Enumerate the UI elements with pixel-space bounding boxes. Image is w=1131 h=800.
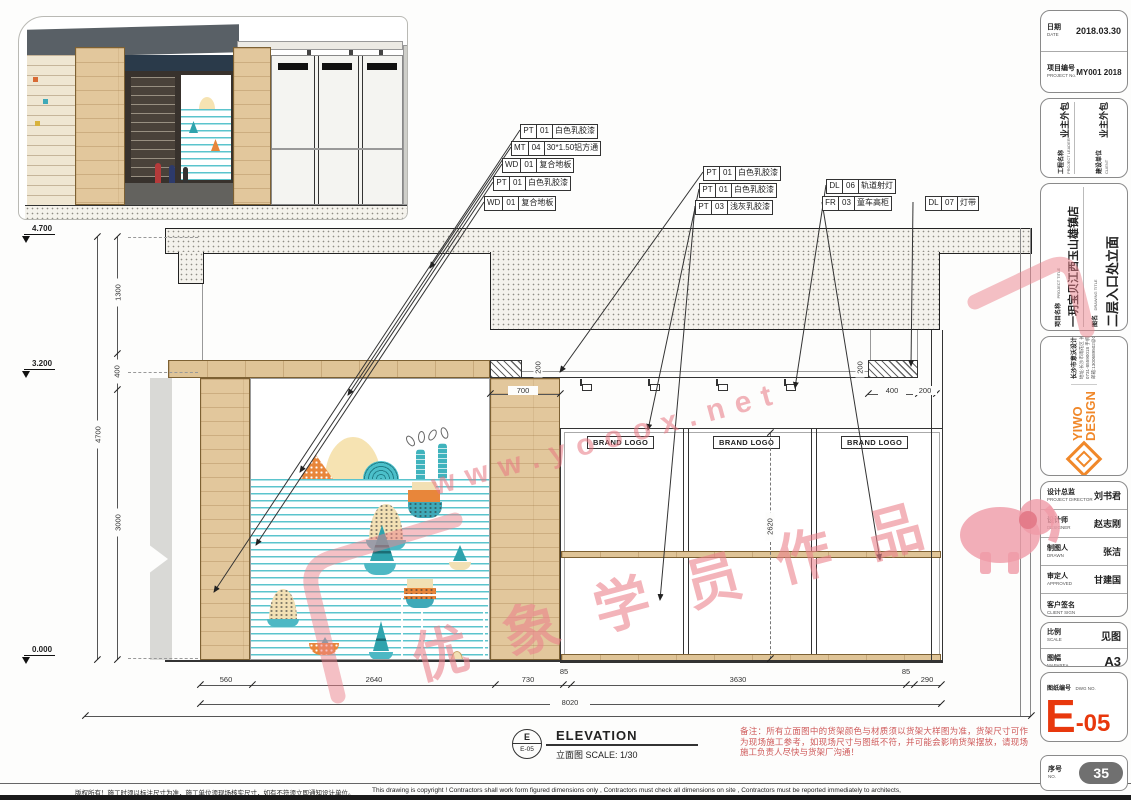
render-interior (125, 55, 233, 205)
tag-code: MT (512, 142, 529, 155)
tag-name: 童车高柜 (855, 197, 891, 210)
outer-dim-line (85, 716, 1031, 717)
level-triangle (22, 371, 30, 378)
material-tag: PT01白色乳胶漆 (699, 183, 777, 198)
client-row: 建设单位CLIENT 业主外包 (1096, 102, 1110, 174)
render-box (43, 99, 48, 104)
size-value: A3 (1104, 654, 1121, 667)
date-label-en: DATE (1047, 32, 1061, 38)
material-tag: PT03浅灰乳胶漆 (695, 200, 773, 215)
date-value: 2018.03.30 (1076, 26, 1121, 36)
brand-logo-sign: BRAND LOGO (587, 436, 654, 449)
bulkhead-hatch-left (490, 360, 522, 378)
dim-label-total: 8020 (550, 698, 590, 707)
vdim-label-2620: 2620 (766, 513, 775, 541)
client-label-en: CLIENT (1104, 150, 1110, 174)
approved-label: 审定人APPROVED (1047, 573, 1072, 587)
size-label-en: MAPAREA (1047, 663, 1069, 668)
level-triangle (22, 236, 30, 243)
projno-label: 项目编号PROJECT No. (1047, 65, 1076, 79)
serial-label: 序号 NO. (1048, 766, 1062, 780)
approved-value: 甘建国 (1094, 573, 1121, 586)
callout-title: ELEVATION (556, 728, 637, 743)
client-sign-label-en: CLIENT SIGN (1047, 610, 1075, 616)
level-mark: 0.000 (24, 645, 55, 656)
wall-line (917, 330, 918, 360)
slab-drop-right (490, 252, 940, 330)
tag-name: 浅灰乳胶漆 (728, 201, 772, 214)
projno-value: MY001 2018 (1076, 68, 1121, 77)
drawing-sheet: BRAND LOGO BRAND LOGO BRAND LOGO (0, 0, 1131, 800)
render-wood-column-left (75, 47, 125, 205)
callout-subtitle: 立面图 SCALE: 1/30 (556, 748, 638, 761)
designer-label-en: DESIGNER (1047, 525, 1071, 531)
tag-code: PT (700, 184, 716, 197)
render-mural-slice (181, 75, 231, 180)
render-box (33, 77, 38, 82)
render-brand-sign (322, 63, 352, 70)
material-tag: MT0430*1.50铝方通 (511, 141, 601, 156)
tag-code: PT (521, 125, 537, 138)
track-light-head (582, 384, 592, 391)
dim-label-200: 200 (534, 358, 543, 378)
mural-leaf (418, 431, 425, 443)
callout-sheet: E-05 (513, 746, 541, 753)
render-storefront (271, 55, 403, 205)
leader-label-en: PROJECT LEADER (1066, 138, 1072, 174)
render-brand-sign (278, 63, 308, 70)
storefront-mullion (811, 429, 817, 661)
mural-ship-deck (407, 579, 433, 588)
material-tag: WD01复合地板 (502, 158, 574, 173)
footer-bar (0, 795, 1131, 800)
approved-label-en: APPROVED (1047, 581, 1072, 587)
client-sign-label: 客户签名CLIENT SIGN (1047, 602, 1075, 616)
titleblock-serial-box: 序号 NO. 35 (1040, 755, 1128, 791)
drawing-title-value: 二层入口处立面 (1102, 187, 1121, 327)
tag-name: 白色乳胶漆 (732, 184, 776, 197)
scale-row: 比例SCALE 见图 (1041, 623, 1127, 649)
date-label-cn: 日期 (1047, 24, 1061, 32)
size-label-cn: 图幅 (1047, 655, 1069, 663)
approved-row: 审定人APPROVED 甘建国 (1041, 566, 1127, 594)
client-sign-row: 客户签名CLIENT SIGN (1041, 594, 1127, 617)
level-dash (128, 372, 198, 373)
wall-break-strip (150, 378, 172, 660)
mural-leaf (439, 426, 450, 440)
brand-logo-sign: BRAND LOGO (841, 436, 908, 449)
render-mullion (358, 56, 363, 204)
vdim-label: 1300 (114, 279, 123, 307)
storefront-mullion (683, 429, 689, 661)
tag-name: 白色乳胶漆 (553, 125, 597, 138)
date-label: 日期DATE (1047, 24, 1061, 38)
vdim-label: 4700 (94, 421, 103, 449)
dwgno-value: E -05 (1041, 695, 1127, 737)
tag-num: 01 (537, 125, 553, 138)
dim-label: 3630 (708, 675, 768, 684)
callout-letter: E (513, 732, 541, 742)
studio-email: 邮箱:1300689502@QQ.com (1091, 336, 1097, 379)
dim-label-200: 200 (856, 358, 865, 378)
wall-line (870, 330, 871, 360)
tag-num: 01 (503, 197, 519, 210)
mural-ship-band (408, 490, 440, 502)
leader-label: 工程名称PROJECT LEADER (1058, 138, 1072, 174)
tag-name: 白色乳胶漆 (736, 167, 780, 180)
drawn-label-cn: 制图人 (1047, 545, 1068, 553)
render-pillar (403, 45, 408, 205)
scale-label-en: SCALE (1047, 637, 1062, 643)
ceiling-line (522, 377, 868, 378)
titleblock-logo-box: YIWO DESIGN 长沙市意沃设计工作室 地址:长沙市雨花区 长沙大道米兰春… (1040, 336, 1128, 476)
tag-code: FR (823, 197, 839, 210)
project-title-row: 项目名称 PROJECT TITLE 一玥宝贝江西玉山雄镇店 (1047, 187, 1084, 327)
level-dash (128, 658, 198, 659)
vdim-line-total (97, 237, 98, 660)
yiwo-logo-text: YIWO DESIGN (1071, 391, 1097, 441)
tag-num: 01 (720, 167, 736, 180)
client-label-cn: 建设单位 (1096, 150, 1104, 174)
project-box-rotated: 项目名称 PROJECT TITLE 一玥宝贝江西玉山雄镇店 图名 DRAWIN… (1047, 187, 1121, 327)
render-thumbnail (18, 16, 408, 220)
designer-value: 赵志刚 (1094, 517, 1121, 530)
director-label: 设计总监PROJECT DIRECTOR (1047, 489, 1093, 503)
size-label: 图幅MAPAREA (1047, 655, 1069, 668)
serial-label-cn: 序号 (1048, 766, 1062, 774)
tag-code: PT (494, 177, 510, 190)
client-sign-label-cn: 客户签名 (1047, 602, 1075, 610)
titleblock-client-box: 工程名称PROJECT LEADER 业主外包 建设单位CLIENT 业主外包 (1040, 98, 1128, 178)
approved-label-cn: 审定人 (1047, 573, 1072, 581)
titleblock-scale-box: 比例SCALE 见图 图幅MAPAREA A3 (1040, 622, 1128, 667)
level-mark: 4.700 (24, 224, 55, 235)
designer-row: 设计师DESIGNER 赵志刚 (1041, 510, 1127, 538)
titleblock-date-box: 日期DATE 2018.03.30 项目编号PROJECT No. MY001 … (1040, 10, 1128, 93)
render-brand-sign (367, 63, 397, 70)
render-mural-sun (199, 97, 215, 109)
projno-label-cn: 项目编号 (1047, 65, 1076, 73)
callout-circle: E E-05 (512, 729, 542, 759)
dim-tick (114, 656, 121, 663)
scale-label: 比例SCALE (1047, 629, 1062, 643)
serial-value-pill: 35 (1079, 762, 1123, 784)
footer-divider (0, 783, 1131, 784)
mural-wall (250, 378, 490, 660)
yiwo-logo-icon (1066, 441, 1103, 476)
yiwo-logo-inner (1076, 451, 1093, 468)
project-number-row: 项目编号PROJECT No. MY001 2018 (1041, 52, 1127, 92)
tag-num: 01 (716, 184, 732, 197)
material-tag: WD01复合地板 (484, 196, 556, 211)
level-triangle (22, 657, 30, 664)
render-wood-column-right (233, 47, 271, 205)
studio-name: 长沙市意沃设计工作室 (1071, 336, 1079, 379)
director-row: 设计总监PROJECT DIRECTOR 刘书君 (1041, 482, 1127, 510)
client-label: 建设单位CLIENT (1096, 150, 1110, 174)
material-tag: PT01白色乳胶漆 (703, 166, 781, 181)
render-person (183, 167, 188, 183)
footer-en: This drawing is copyright ! Contractors … (372, 787, 901, 794)
project-title-label-cn: 项目名称 (1056, 303, 1062, 327)
mural-buoy-base (267, 619, 299, 627)
size-row: 图幅MAPAREA A3 (1041, 649, 1127, 667)
material-tag: PT01白色乳胶漆 (520, 124, 598, 139)
wood-column-left (200, 378, 250, 660)
director-value: 刘书君 (1094, 489, 1121, 502)
dim-label: 730 (508, 675, 548, 684)
tag-code: WD (503, 159, 521, 172)
vdim-label: 3000 (114, 509, 123, 537)
right-wall (931, 330, 943, 663)
scale-label-cn: 比例 (1047, 629, 1062, 637)
floor-line (165, 660, 943, 662)
tag-code: PT (704, 167, 720, 180)
tag-code: DL (827, 180, 843, 193)
drawing-title-label-en: DRAWING TITLE (1093, 279, 1098, 310)
render-box (35, 121, 40, 126)
drawn-row: 制图人DRAWN 张洁 (1041, 538, 1127, 566)
dim-label-400: 400 (878, 386, 906, 395)
storefront-inner-frame (564, 432, 940, 660)
material-tag: FR03童车高柜 (822, 196, 892, 211)
wall-line (202, 284, 203, 362)
studio-info: 长沙市意沃设计工作室 地址:长沙市雨花区 长沙大道米兰春天1栋902室 0731… (1071, 336, 1097, 385)
dim-tick (938, 700, 945, 707)
titleblock-dwgno-box: 图纸编号 DWG NO. E -05 (1040, 672, 1128, 742)
ceiling-line-upper (522, 371, 868, 372)
client-value: 业主外包 (1097, 102, 1110, 138)
tag-name: 白色乳胶漆 (526, 177, 570, 190)
leader-label-cn: 工程名称 (1058, 138, 1066, 174)
client-box-rotated: 工程名称PROJECT LEADER 业主外包 建设单位CLIENT 业主外包 (1047, 102, 1121, 174)
tag-num: 01 (521, 159, 537, 172)
drawn-value: 张洁 (1103, 545, 1121, 558)
tag-name: 灯带 (958, 197, 978, 210)
material-tag: PT01白色乳胶漆 (493, 176, 571, 191)
callout-divider (513, 743, 541, 744)
drawing-title-row: 图名 DRAWING TITLE 二层入口处立面 (1084, 187, 1121, 327)
director-label-cn: 设计总监 (1047, 489, 1093, 497)
render-fascia (27, 24, 239, 58)
building-edge (1020, 228, 1031, 716)
wood-fascia (168, 360, 490, 378)
tag-name: 复合地板 (537, 159, 573, 172)
tag-code: DL (926, 197, 942, 210)
render-ground (25, 205, 408, 220)
dwgno-main: E (1045, 695, 1076, 737)
drawing-title-label-cn: 图名 (1093, 315, 1099, 327)
bulkhead-hatch-right (868, 360, 918, 378)
dim-label-200: 200 (913, 386, 937, 395)
titleblock-project-box: 项目名称 PROJECT TITLE 一玥宝贝江西玉山雄镇店 图名 DRAWIN… (1040, 183, 1128, 331)
project-title-value: 一玥宝贝江西玉山雄镇店 (1065, 187, 1081, 327)
dim-label: 560 (206, 675, 246, 684)
vdim-line-2620 (770, 433, 771, 659)
material-tag: DL06轨道射灯 (826, 179, 896, 194)
tag-name: 轨道射灯 (859, 180, 895, 193)
mural-cactus (416, 449, 425, 479)
render-floor (125, 183, 233, 205)
dim-label: 290 (914, 675, 940, 684)
track-light-head (718, 384, 728, 391)
dwgno-label-en: DWG NO. (1075, 686, 1095, 691)
tag-code: PT (696, 201, 712, 214)
mural-rack-outline (421, 609, 485, 660)
slab-stub (178, 252, 204, 284)
project-title-label-en: PROJECT TITLE (1056, 268, 1061, 299)
drawn-label: 制图人DRAWN (1047, 545, 1068, 559)
serial-label-en: NO. (1048, 774, 1062, 780)
mural-leaf (426, 428, 438, 442)
yiwo-logo: YIWO DESIGN (1071, 391, 1097, 472)
render-shelf-unit (131, 77, 175, 177)
tag-num: 03 (839, 197, 855, 210)
tag-code: WD (485, 197, 503, 210)
wood-column-right (490, 378, 560, 660)
render-mullion (314, 56, 319, 204)
logo-line2: DESIGN (1084, 391, 1097, 441)
dim-label: 85 (554, 667, 574, 676)
callout-underline (546, 744, 698, 746)
vdim-label: 400 (113, 360, 122, 384)
ceiling-slab (165, 228, 1032, 254)
tag-num: 07 (942, 197, 958, 210)
date-row: 日期DATE 2018.03.30 (1041, 11, 1127, 52)
tag-name: 30*1.50铝方通 (545, 142, 601, 155)
designer-label-cn: 设计师 (1047, 517, 1071, 525)
tag-num: 03 (712, 201, 728, 214)
designer-label: 设计师DESIGNER (1047, 517, 1071, 531)
break-symbol (148, 544, 168, 574)
material-tag: DL07灯带 (925, 196, 979, 211)
titleblock-people-box: 设计总监PROJECT DIRECTOR 刘书君 设计师DESIGNER 赵志刚… (1040, 481, 1128, 617)
director-label-en: PROJECT DIRECTOR (1047, 497, 1093, 503)
dim-label: 85 (896, 667, 916, 676)
tag-num: 06 (843, 180, 859, 193)
mural-leaf (404, 434, 417, 448)
render-ceiling (125, 55, 233, 71)
dwgno-sub: -05 (1076, 711, 1111, 737)
mural-cactus (438, 443, 447, 479)
tag-name: 复合地板 (519, 197, 555, 210)
project-leader-row: 工程名称PROJECT LEADER 业主外包 (1058, 102, 1075, 174)
projno-label-en: PROJECT No. (1047, 73, 1076, 79)
level-dash (128, 237, 198, 238)
mural-ship-hull (408, 502, 442, 518)
scale-value: 见图 (1101, 628, 1121, 643)
mural-ship-deck (412, 482, 436, 490)
red-note: 备注：所有立面图中的货架颜色与材质须以货架大样图为准，货架尺寸可作为现场施工参考… (740, 726, 1028, 758)
track-light-head (786, 384, 796, 391)
leader-value: 业主外包 (1058, 102, 1071, 138)
dim-label-700: 700 (508, 386, 538, 395)
storefront-transom (561, 551, 941, 558)
drawn-label-en: DRAWN (1047, 553, 1068, 559)
render-transom (272, 148, 402, 150)
tag-num: 04 (529, 142, 545, 155)
render-person (169, 165, 175, 183)
render-mural-stripes (181, 109, 231, 180)
dim-label: 2640 (344, 675, 404, 684)
render-person (155, 163, 161, 183)
level-mark: 3.200 (24, 359, 55, 370)
dim-tick (94, 656, 101, 663)
tag-num: 01 (510, 177, 526, 190)
storefront: BRAND LOGO BRAND LOGO BRAND LOGO (560, 428, 943, 663)
track-light-head (650, 384, 660, 391)
logo-box-rotated: YIWO DESIGN 长沙市意沃设计工作室 地址:长沙市雨花区 长沙大道米兰春… (1046, 340, 1122, 472)
